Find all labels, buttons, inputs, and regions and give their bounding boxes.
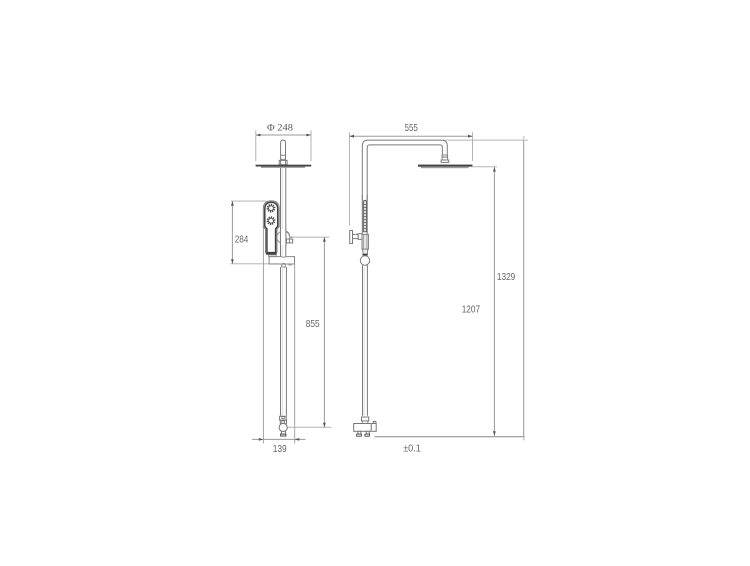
svg-text:555: 555 <box>405 123 419 134</box>
svg-text:1207: 1207 <box>462 304 481 315</box>
svg-text:284: 284 <box>235 235 249 246</box>
svg-text:Φ 248: Φ 248 <box>267 124 293 134</box>
svg-text:855: 855 <box>306 319 320 330</box>
svg-text:1329: 1329 <box>497 272 516 283</box>
svg-text:±0.1: ±0.1 <box>403 444 421 455</box>
svg-text:139: 139 <box>273 444 287 455</box>
